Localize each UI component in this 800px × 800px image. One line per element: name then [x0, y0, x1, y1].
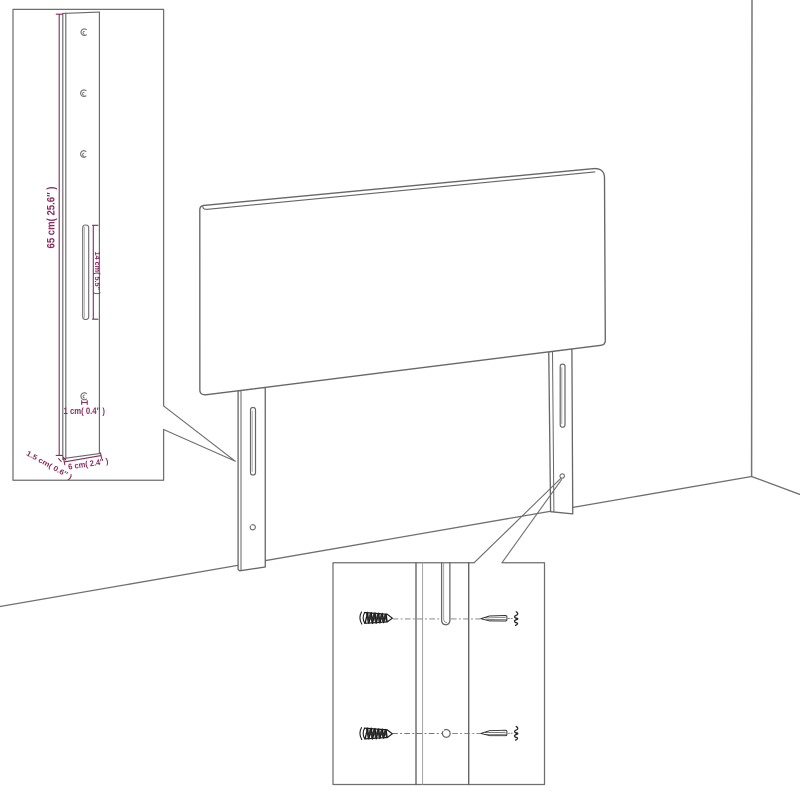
- svg-text:14 cm( 5.5″ ): 14 cm( 5.5″ ): [93, 252, 102, 296]
- svg-text:1 cm( 0.4″ ): 1 cm( 0.4″ ): [64, 406, 106, 416]
- svg-text:65 cm( 25.6″ ): 65 cm( 25.6″ ): [45, 186, 57, 248]
